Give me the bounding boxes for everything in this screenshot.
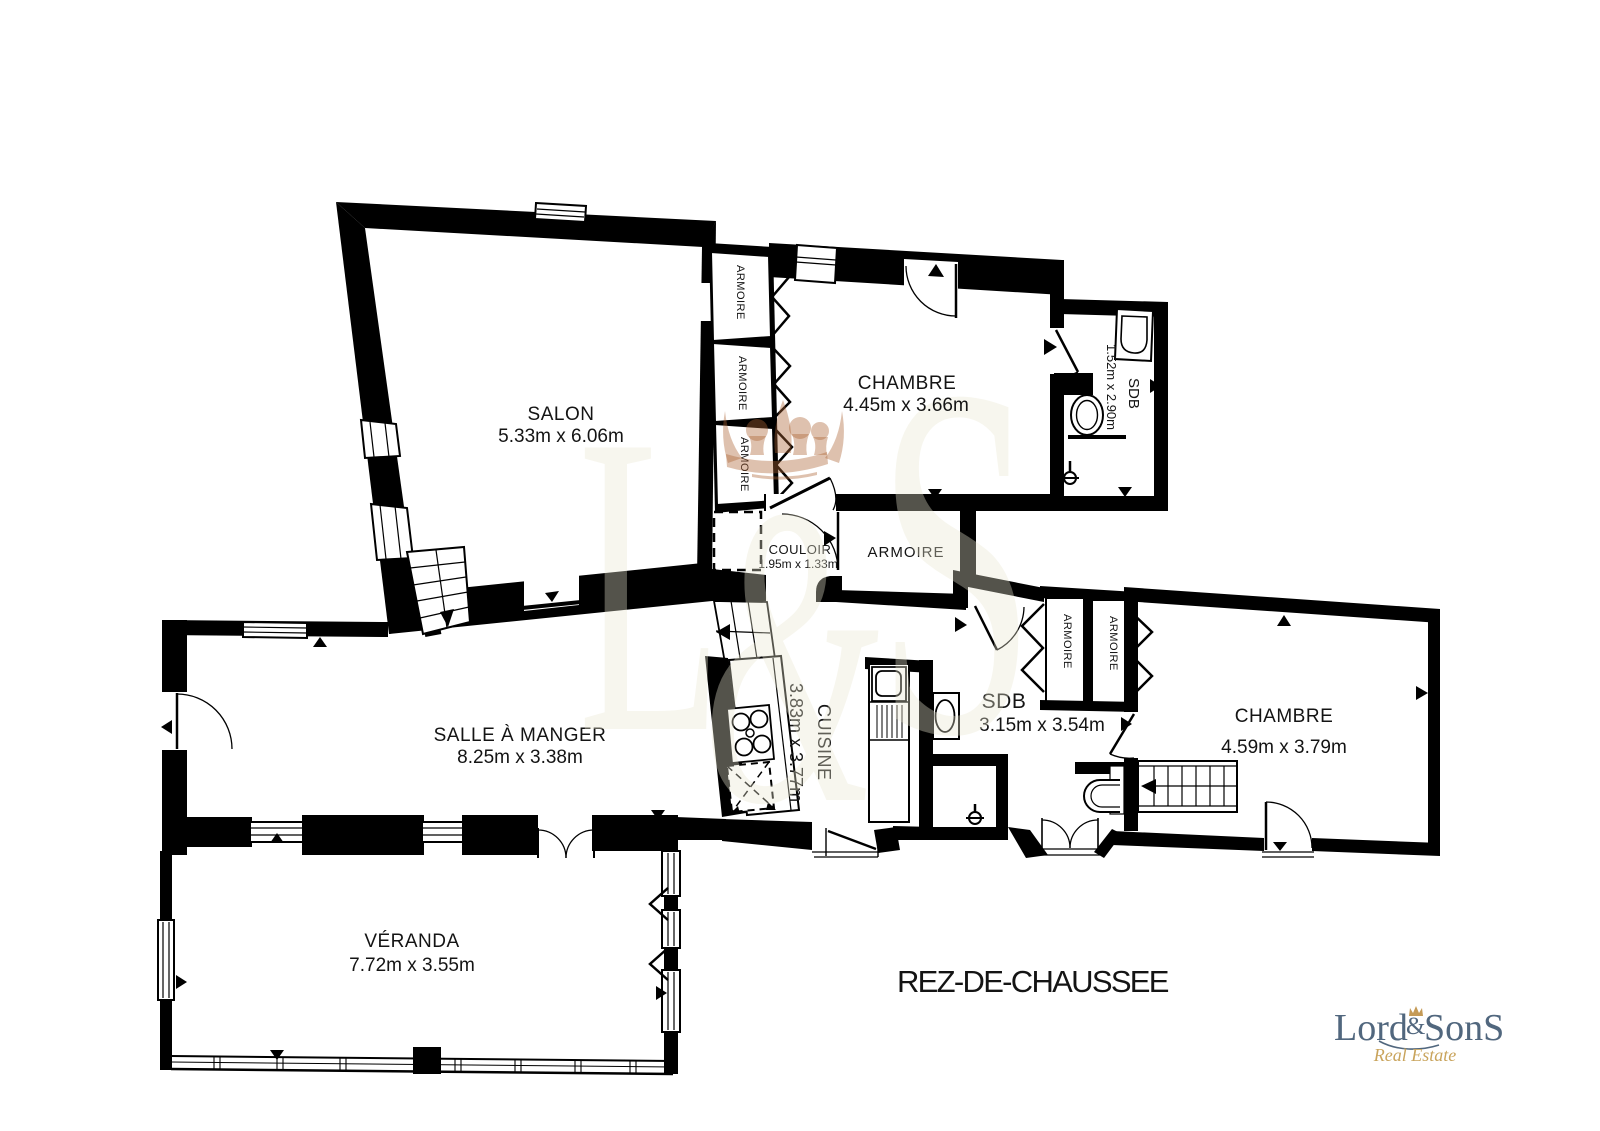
svg-text:4.45m x 3.66m: 4.45m x 3.66m	[843, 395, 969, 416]
svg-text:1.52m x 2.90m: 1.52m x 2.90m	[1104, 344, 1119, 430]
svg-text:8.25m x 3.38m: 8.25m x 3.38m	[457, 747, 583, 768]
svg-text:CHAMBRE: CHAMBRE	[1235, 706, 1334, 727]
svg-text:SonS: SonS	[1424, 1007, 1504, 1049]
svg-text:L: L	[578, 347, 722, 823]
svg-text:ARMOIRE: ARMOIRE	[1107, 616, 1119, 671]
svg-text:&: &	[702, 418, 880, 894]
svg-text:ARMOIRE: ARMOIRE	[736, 356, 748, 411]
svg-text:ARMOIRE: ARMOIRE	[1061, 614, 1073, 669]
svg-text:7.72m x 3.55m: 7.72m x 3.55m	[349, 955, 475, 976]
svg-text:4.59m x 3.79m: 4.59m x 3.79m	[1221, 737, 1347, 758]
svg-text:S: S	[876, 281, 1036, 840]
svg-text:REZ-DE-CHAUSSEE: REZ-DE-CHAUSSEE	[897, 964, 1169, 999]
svg-text:&: &	[1406, 1013, 1425, 1040]
svg-text:Lord: Lord	[1334, 1007, 1408, 1049]
svg-text:CHAMBRE: CHAMBRE	[858, 373, 957, 394]
svg-text:SDB: SDB	[1125, 378, 1142, 409]
svg-text:SALON: SALON	[528, 404, 595, 425]
svg-text:VÉRANDA: VÉRANDA	[364, 931, 459, 952]
svg-text:5.33m x 6.06m: 5.33m x 6.06m	[498, 426, 624, 447]
svg-text:Real Estate: Real Estate	[1373, 1045, 1456, 1065]
svg-text:ARMOIRE: ARMOIRE	[734, 265, 746, 320]
